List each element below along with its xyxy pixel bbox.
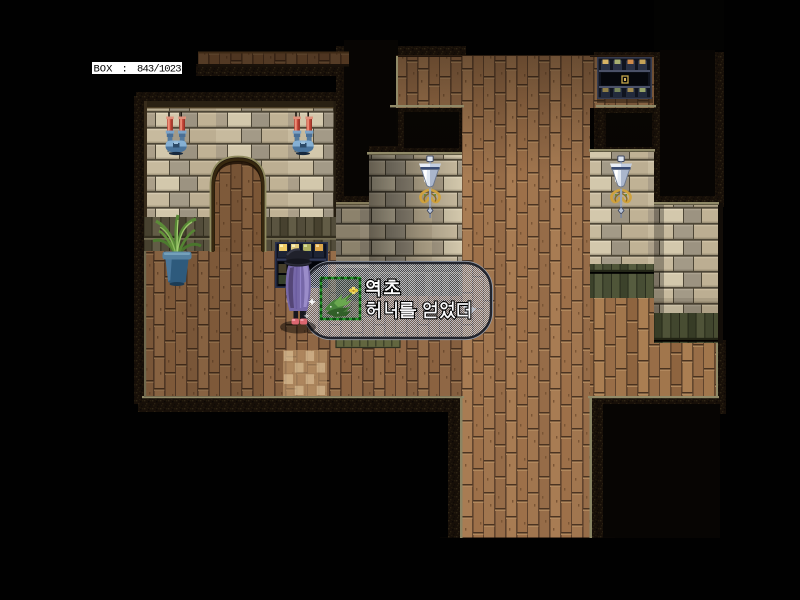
- svg-text:843/1023: 843/1023: [137, 64, 182, 76]
- svg-text::: :: [122, 64, 128, 76]
- svg-text:BOX: BOX: [94, 64, 114, 76]
